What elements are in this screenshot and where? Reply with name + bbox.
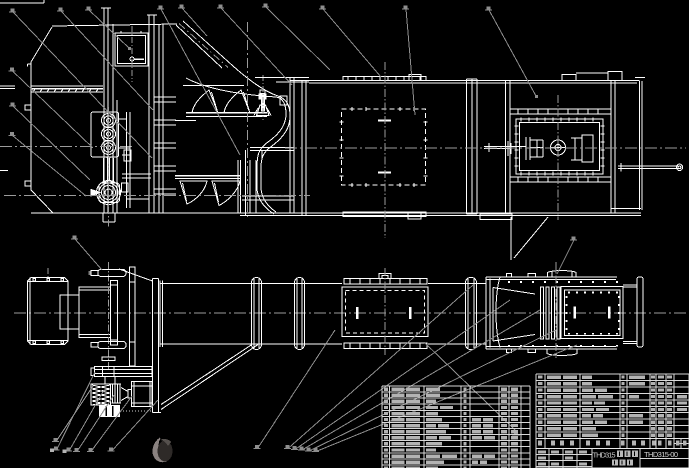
svg-text:THD315-00: THD315-00 (644, 450, 678, 459)
svg-text:THD315: THD315 (593, 451, 616, 460)
